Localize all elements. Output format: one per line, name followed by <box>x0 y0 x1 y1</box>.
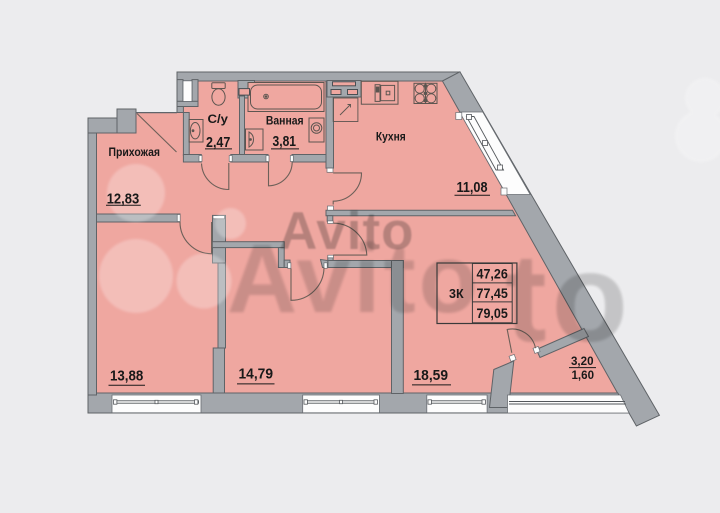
svg-text:3,20: 3,20 <box>571 354 594 368</box>
svg-text:79,05: 79,05 <box>477 305 508 321</box>
svg-text:13,88: 13,88 <box>110 367 143 384</box>
svg-text:18,59: 18,59 <box>414 367 449 384</box>
svg-text:С/у: С/у <box>208 114 229 126</box>
svg-text:3К: 3К <box>449 287 464 301</box>
svg-text:Кухня: Кухня <box>376 131 406 143</box>
svg-text:1,60: 1,60 <box>572 368 595 382</box>
svg-text:Прихожая: Прихожая <box>109 147 161 159</box>
svg-text:77,45: 77,45 <box>477 285 508 301</box>
svg-text:Avito: Avito <box>279 202 415 261</box>
svg-text:11,08: 11,08 <box>457 179 488 196</box>
svg-text:to: to <box>505 229 633 368</box>
svg-text:Ванная: Ванная <box>266 115 304 127</box>
svg-text:14,79: 14,79 <box>239 365 274 382</box>
svg-text:47,26: 47,26 <box>477 265 508 281</box>
svg-text:3,81: 3,81 <box>273 133 297 150</box>
